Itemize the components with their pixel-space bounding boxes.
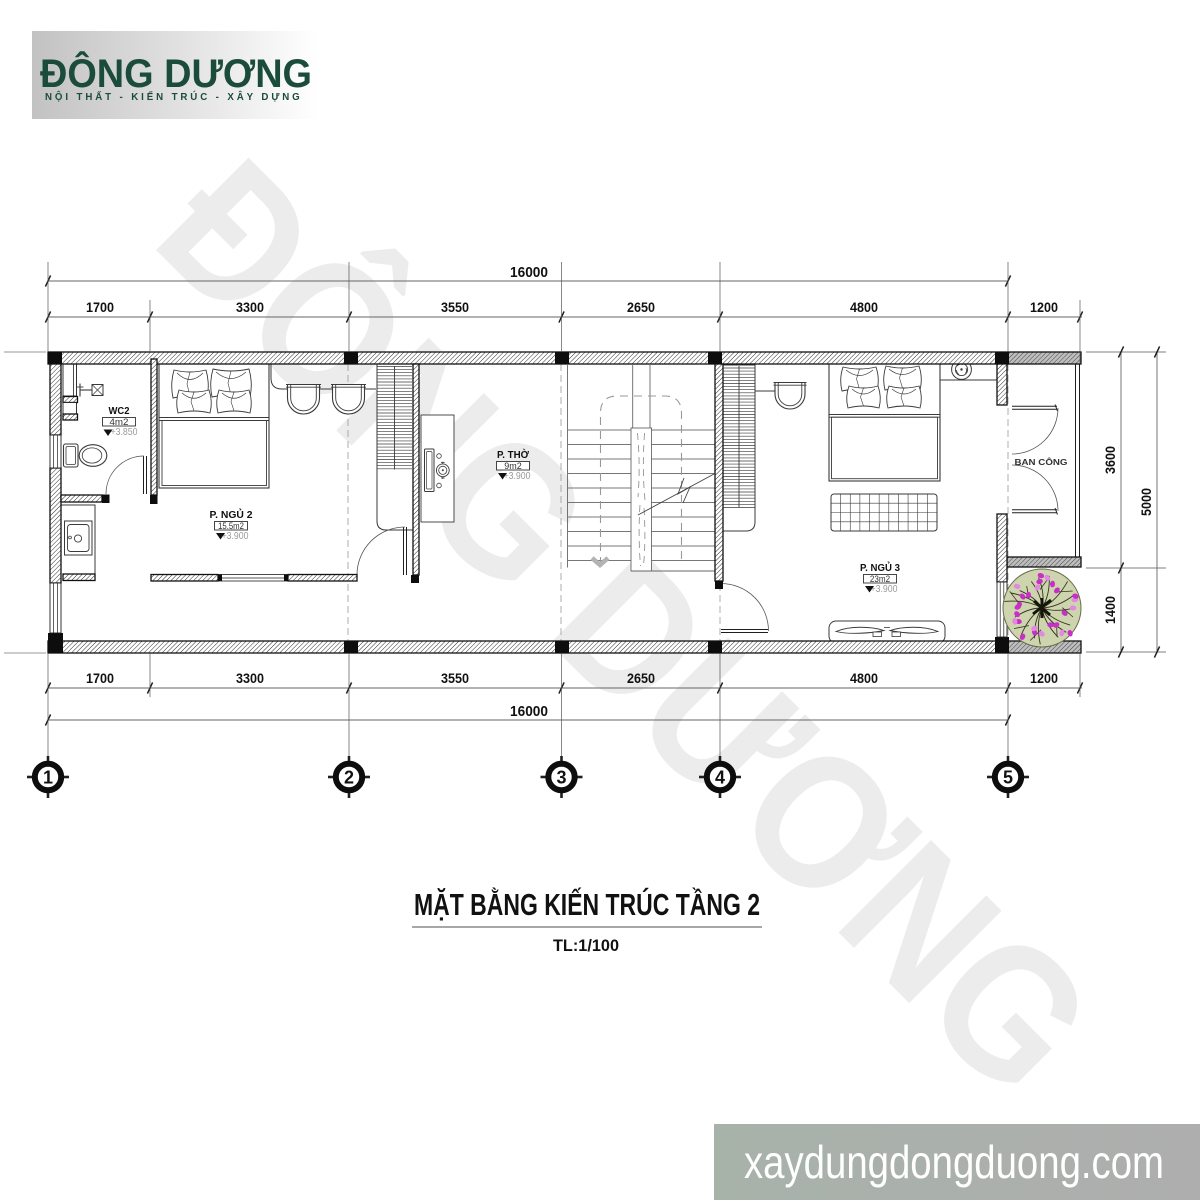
svg-text:5000: 5000 [1138, 488, 1154, 516]
svg-text:1200: 1200 [1030, 670, 1058, 686]
svg-text:MẶT BẰNG KIẾN TRÚC TẦNG 2: MẶT BẰNG KIẾN TRÚC TẦNG 2 [414, 886, 760, 922]
svg-text:1700: 1700 [86, 299, 114, 315]
svg-text:16000: 16000 [510, 704, 548, 720]
svg-text:P. NGỦ 2: P. NGỦ 2 [210, 508, 253, 521]
svg-text:3600: 3600 [1102, 446, 1118, 474]
svg-text:4: 4 [715, 767, 725, 787]
svg-text:16000: 16000 [510, 265, 548, 281]
svg-text:3300: 3300 [236, 299, 264, 315]
svg-text:xaydungdongduong.com: xaydungdongduong.com [744, 1136, 1164, 1188]
svg-text:1400: 1400 [1102, 596, 1118, 624]
svg-text:WC2: WC2 [109, 405, 130, 417]
svg-text:+3.900: +3.900 [871, 583, 898, 595]
svg-text:+3.850: +3.850 [111, 426, 138, 438]
svg-text:P. NGỦ 3: P. NGỦ 3 [860, 561, 900, 574]
svg-text:2650: 2650 [627, 670, 655, 686]
svg-text:1700: 1700 [86, 670, 114, 686]
svg-text:3: 3 [556, 767, 566, 787]
svg-text:+3.900: +3.900 [504, 470, 531, 482]
svg-text:4800: 4800 [850, 670, 878, 686]
svg-text:3550: 3550 [441, 299, 469, 315]
svg-text:4800: 4800 [850, 299, 878, 315]
svg-text:3300: 3300 [236, 670, 264, 686]
svg-text:1: 1 [43, 767, 53, 787]
svg-text:P. THỜ: P. THỜ [497, 448, 529, 461]
svg-text:ĐÔNG DƯƠNG: ĐÔNG DƯƠNG [40, 50, 312, 96]
svg-text:TL:1/100: TL:1/100 [553, 936, 619, 955]
svg-text:3550: 3550 [441, 670, 469, 686]
svg-text:1200: 1200 [1030, 299, 1058, 315]
svg-text:NỘI THẤT - KIẾN TRÚC - XÂY DỰN: NỘI THẤT - KIẾN TRÚC - XÂY DỰNG [45, 91, 303, 103]
svg-text:2: 2 [344, 767, 354, 787]
svg-text:+3.900: +3.900 [222, 530, 249, 542]
svg-text:5: 5 [1003, 767, 1013, 787]
svg-text:BAN CÔNG: BAN CÔNG [1015, 456, 1068, 467]
svg-text:2650: 2650 [627, 299, 655, 315]
